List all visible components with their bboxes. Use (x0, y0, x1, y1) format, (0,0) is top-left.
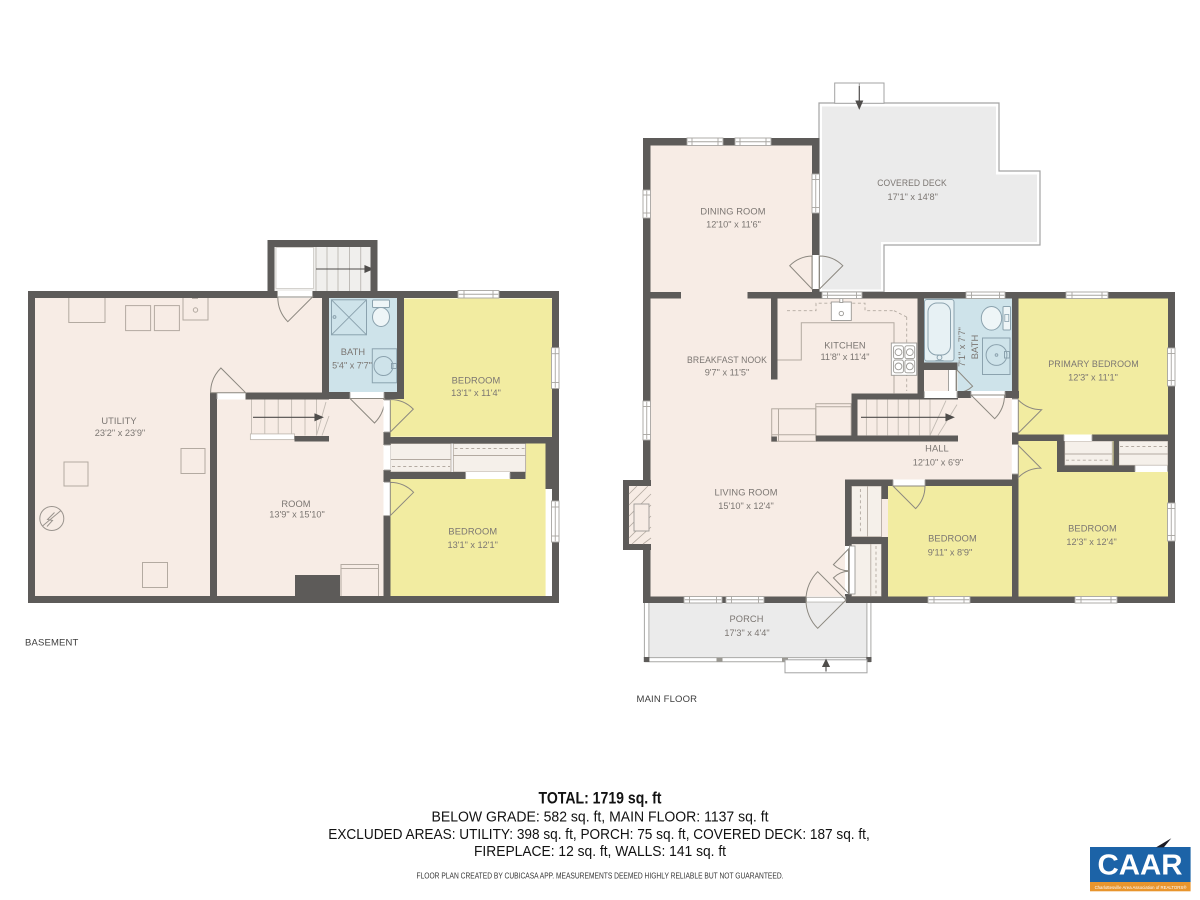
svg-text:13'9" x 15'10": 13'9" x 15'10" (269, 510, 325, 520)
svg-text:BELOW GRADE: 582 sq. ft, MAIN: BELOW GRADE: 582 sq. ft, MAIN FLOOR: 113… (432, 809, 770, 826)
svg-text:TOTAL: 1719 sq. ft: TOTAL: 1719 sq. ft (539, 790, 662, 808)
svg-text:BREAKFAST NOOK: BREAKFAST NOOK (687, 355, 768, 365)
svg-text:9'7" x 11'5": 9'7" x 11'5" (705, 368, 750, 378)
svg-text:DINING ROOM: DINING ROOM (700, 207, 765, 217)
svg-text:BEDROOM: BEDROOM (928, 534, 977, 544)
svg-text:MAIN FLOOR: MAIN FLOOR (637, 694, 698, 705)
svg-text:KITCHEN: KITCHEN (824, 341, 866, 351)
svg-text:7'1" x 7'7": 7'1" x 7'7" (957, 327, 967, 367)
svg-text:15'10" x 12'4": 15'10" x 12'4" (718, 501, 774, 511)
svg-text:EXCLUDED AREAS: UTILITY: 398 s: EXCLUDED AREAS: UTILITY: 398 sq. ft, POR… (328, 826, 870, 843)
svg-text:13'1" x 12'1": 13'1" x 12'1" (448, 540, 498, 550)
svg-text:11'8" x 11'4": 11'8" x 11'4" (820, 352, 869, 362)
svg-text:12'10" x 11'6": 12'10" x 11'6" (706, 220, 761, 230)
svg-text:13'1" x 11'4": 13'1" x 11'4" (451, 388, 501, 398)
svg-text:BASEMENT: BASEMENT (25, 638, 79, 649)
svg-text:5'4" x 7'7": 5'4" x 7'7" (332, 361, 372, 371)
svg-text:UTILITY: UTILITY (101, 416, 136, 426)
svg-text:HALL: HALL (925, 444, 949, 454)
svg-text:12'3" x 12'4": 12'3" x 12'4" (1066, 537, 1116, 547)
svg-text:BEDROOM: BEDROOM (452, 376, 501, 386)
svg-text:12'10" x 6'9": 12'10" x 6'9" (913, 458, 963, 468)
svg-text:Charlottesville Area Associati: Charlottesville Area Association of REAL… (1095, 885, 1188, 890)
svg-text:BATH: BATH (970, 335, 980, 360)
svg-text:17'3" x 4'4": 17'3" x 4'4" (724, 628, 769, 638)
svg-text:BEDROOM: BEDROOM (448, 527, 497, 537)
svg-text:12'3" x 11'1": 12'3" x 11'1" (1068, 373, 1118, 383)
svg-text:COVERED DECK: COVERED DECK (877, 178, 947, 188)
svg-text:PORCH: PORCH (729, 614, 763, 624)
svg-text:BATH: BATH (341, 347, 366, 357)
svg-text:CAAR: CAAR (1098, 850, 1183, 882)
svg-text:ROOM: ROOM (281, 499, 310, 509)
svg-text:FLOOR PLAN CREATED BY CUBICASA: FLOOR PLAN CREATED BY CUBICASA APP. MEAS… (417, 872, 784, 881)
svg-text:23'2" x 23'9": 23'2" x 23'9" (95, 428, 145, 438)
svg-text:9'11" x 8'9": 9'11" x 8'9" (928, 548, 973, 558)
svg-text:BEDROOM: BEDROOM (1068, 524, 1117, 534)
svg-text:PRIMARY BEDROOM: PRIMARY BEDROOM (1048, 359, 1139, 369)
svg-text:LIVING ROOM: LIVING ROOM (714, 488, 777, 498)
svg-text:17'1" x 14'8": 17'1" x 14'8" (888, 192, 938, 202)
svg-text:FIREPLACE: 12 sq. ft, WALLS: 1: FIREPLACE: 12 sq. ft, WALLS: 141 sq. ft (474, 843, 727, 860)
